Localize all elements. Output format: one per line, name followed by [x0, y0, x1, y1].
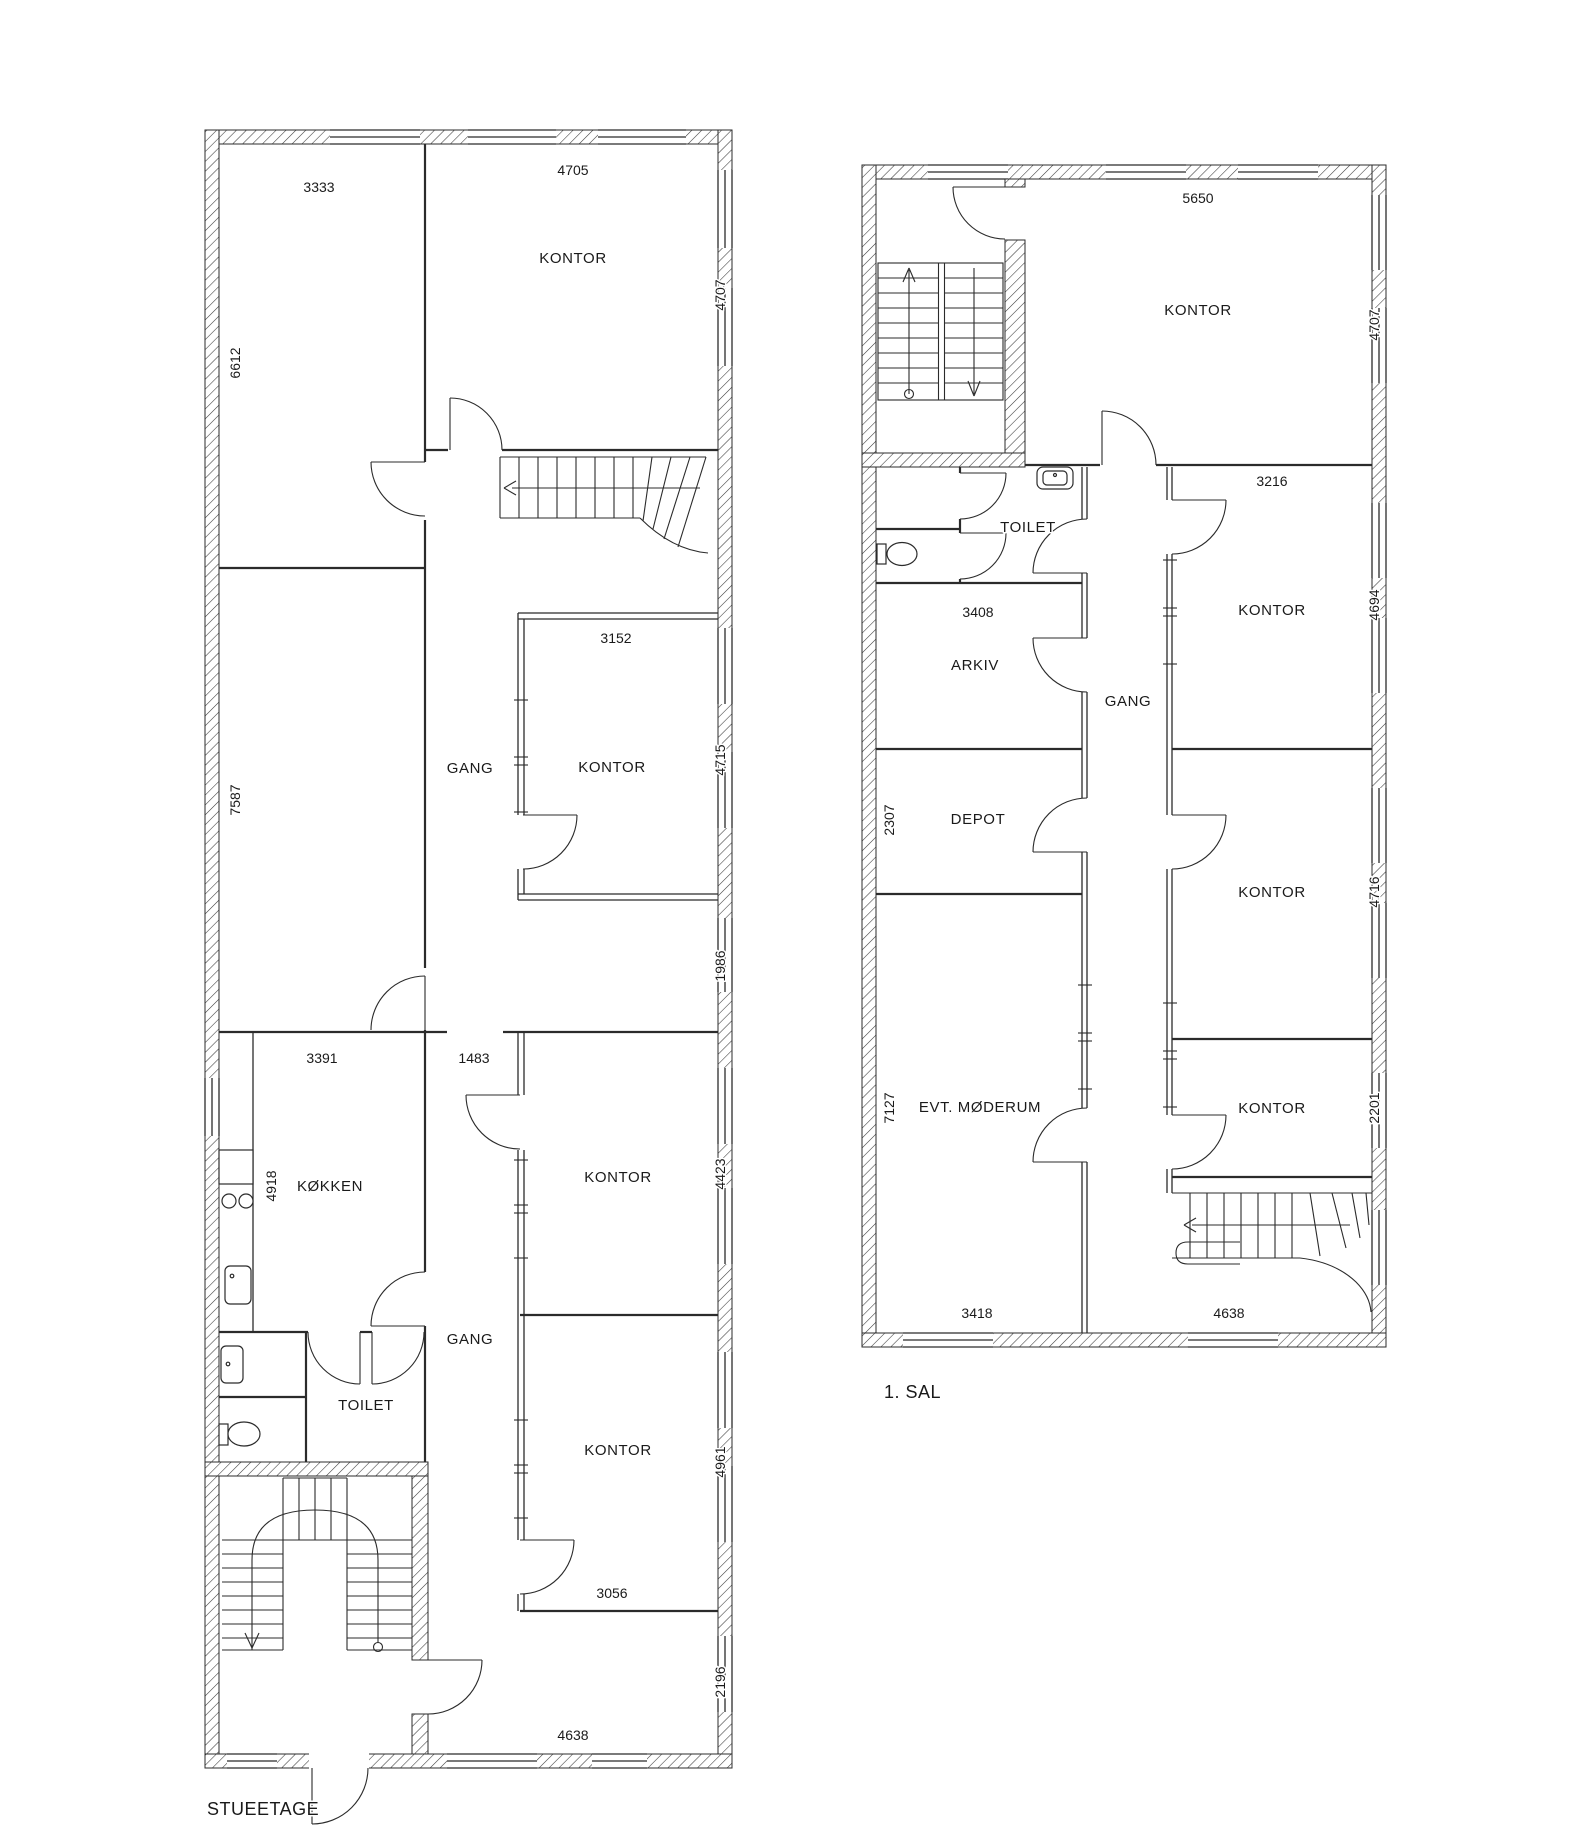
door-wc-upper	[960, 473, 1006, 519]
door-arkiv	[1033, 638, 1087, 692]
ground-inner-office-walls	[514, 613, 718, 900]
room-label-toilet-first: TOILET	[1000, 519, 1056, 536]
kitchen-sink	[225, 1266, 251, 1304]
kitchen-fixtures	[219, 1032, 253, 1332]
door-depot	[1033, 798, 1087, 852]
room-label-kontor-inner: KONTOR	[578, 759, 646, 776]
dim-kontor-e1-height: 4694	[1366, 589, 1382, 620]
dim-gang-mid-height: 1986	[712, 950, 728, 981]
door-kontor-mid	[466, 1095, 520, 1149]
ground-exterior-walls	[205, 130, 732, 1768]
dim-arkiv-width: 3408	[962, 604, 993, 620]
dim-south-width: 4638	[557, 1727, 588, 1743]
room-label-kontor-mid: KONTOR	[584, 1169, 652, 1186]
dim-depot-height: 2307	[881, 804, 897, 835]
first-floor-plan: 5650 KONTOR 4707 TOILET 3408 ARKIV DEPOT…	[862, 164, 1387, 1402]
door-moderum	[1033, 1108, 1087, 1162]
room-label-kokken: KØKKEN	[297, 1178, 363, 1195]
first-windows	[903, 164, 1387, 1348]
door-kokken	[371, 1272, 425, 1326]
dim-moderum-height: 7127	[881, 1092, 897, 1123]
dim-kontor-inner-height: 4715	[712, 744, 728, 775]
ground-upper-stairs	[500, 457, 708, 553]
wc-tank	[877, 544, 886, 564]
first-floor-title: 1. SAL	[884, 1382, 941, 1402]
door-kontor-e3	[1172, 1115, 1226, 1169]
glass-partition-ticks	[514, 1160, 528, 1518]
ground-labels: 3333 6612 4705 KONTOR 4707 7587 GANG 315…	[207, 162, 728, 1819]
dim-hall-s-height: 2196	[712, 1666, 728, 1697]
ground-interior-walls	[205, 144, 718, 1754]
room-label-kontor-n: KONTOR	[1164, 302, 1232, 319]
room-label-kontor-ne: KONTOR	[539, 250, 607, 267]
room-label-kontor-e1: KONTOR	[1238, 602, 1306, 619]
ground-floor-title: STUEETAGE	[207, 1799, 319, 1819]
door-kontor-e2	[1172, 815, 1226, 869]
dim-kontor-n-height: 4707	[1366, 309, 1382, 340]
dim-south-width-first: 4638	[1213, 1305, 1244, 1321]
dim-kontor-low-height: 4961	[712, 1446, 728, 1477]
hand-basin	[221, 1346, 243, 1383]
floor-plan-drawing: 3333 6612 4705 KONTOR 4707 7587 GANG 315…	[0, 0, 1578, 1834]
door-kontor-e1	[1172, 500, 1226, 554]
first-doors	[953, 187, 1226, 1169]
dim-kontor-mid-height: 4423	[712, 1158, 728, 1189]
stove	[219, 1150, 253, 1184]
burner	[239, 1194, 253, 1208]
glass-partition-ticks	[1078, 560, 1177, 1107]
wc-bowl	[887, 543, 917, 566]
dim-room-w-height: 7587	[227, 784, 243, 815]
first-exterior-walls	[862, 165, 1386, 1347]
dim-kokken-height: 4918	[263, 1170, 279, 1201]
dim-room-nw-width: 3333	[303, 179, 334, 195]
dim-room-nw-height: 6612	[227, 347, 243, 378]
door-stairwell	[953, 187, 1005, 239]
floor-plan-sheet: 3333 6612 4705 KONTOR 4707 7587 GANG 315…	[0, 0, 1578, 1834]
door-stair-hall	[428, 1660, 482, 1714]
dim-kontor-ne-height: 4707	[712, 279, 728, 310]
door-kontor-ne	[450, 398, 502, 450]
room-label-moderum: EVT. MØDERUM	[919, 1099, 1041, 1116]
first-stairwell-stairs	[878, 263, 1003, 400]
door-kontor-low	[520, 1540, 574, 1594]
ground-main-stairs	[222, 1478, 412, 1652]
room-label-toilet: TOILET	[338, 1397, 394, 1414]
dim-kontor-e3-height: 2201	[1366, 1092, 1382, 1123]
door-wc-lower	[960, 533, 1006, 579]
room-label-gang-lower: GANG	[447, 1331, 494, 1348]
ground-floor-plan: 3333 6612 4705 KONTOR 4707 7587 GANG 315…	[204, 129, 733, 1824]
dim-kontor-inner-width: 3152	[600, 630, 631, 646]
room-label-arkiv: ARKIV	[951, 657, 999, 674]
room-label-kontor-e2: KONTOR	[1238, 884, 1306, 901]
dim-kontor-low-width: 3056	[596, 1585, 627, 1601]
room-label-gang-first: GANG	[1105, 693, 1152, 710]
dim-kontor-ne-width: 4705	[557, 162, 588, 178]
first-lower-stairs	[1172, 1193, 1372, 1312]
room-label-gang-upper: GANG	[447, 760, 494, 777]
door-kontor-n	[1102, 411, 1156, 465]
dim-hall-width: 1483	[458, 1050, 489, 1066]
burner	[222, 1194, 236, 1208]
dim-kontor-n-width: 5650	[1182, 190, 1213, 206]
room-label-depot: DEPOT	[951, 811, 1006, 828]
dim-kontor-e2-height: 4716	[1366, 876, 1382, 907]
room-label-kontor-e3: KONTOR	[1238, 1100, 1306, 1117]
dim-moderum-width: 3418	[961, 1305, 992, 1321]
wc-bowl	[228, 1422, 260, 1446]
dim-kokken-width: 3391	[306, 1050, 337, 1066]
ground-windows-north	[330, 129, 686, 145]
wc-tank	[219, 1424, 228, 1445]
door-toilet-right	[372, 1332, 424, 1384]
door-room-a	[371, 462, 425, 516]
first-labels: 5650 KONTOR 4707 TOILET 3408 ARKIV DEPOT…	[881, 190, 1382, 1402]
door-inner-office	[523, 815, 577, 869]
kitchen-window	[204, 1078, 220, 1136]
dim-kontor-e1-width: 3216	[1256, 473, 1287, 489]
door-toilet-left	[308, 1332, 360, 1384]
door-room-b	[371, 976, 425, 1030]
room-label-kontor-low: KONTOR	[584, 1442, 652, 1459]
